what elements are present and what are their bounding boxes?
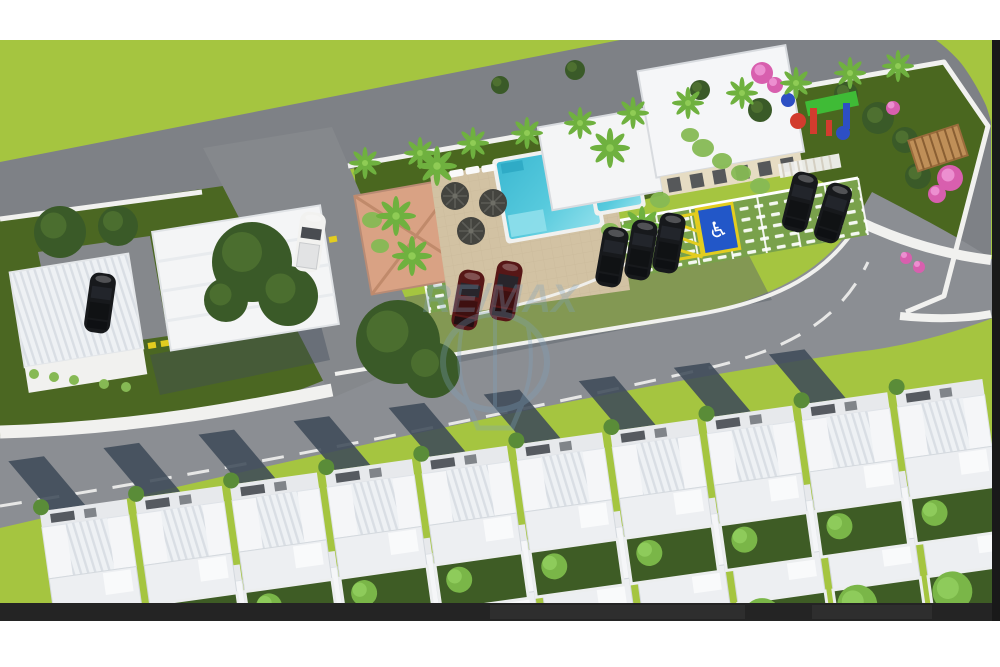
roof-ribbed-panel — [731, 425, 780, 482]
shrub — [650, 192, 670, 208]
shrub — [681, 128, 699, 142]
planter-shrub — [99, 379, 109, 389]
right-dark-strip — [992, 40, 1000, 621]
playground-item — [810, 108, 817, 134]
clubhouse-opening — [689, 173, 704, 189]
shrub — [371, 239, 389, 253]
clubhouse-opening — [757, 161, 772, 177]
palm-crown — [685, 100, 691, 106]
palm-crown — [417, 150, 423, 156]
truck-bed — [296, 243, 319, 270]
front-window — [844, 401, 857, 412]
terrace — [863, 462, 894, 488]
tree-cluster-light — [210, 284, 232, 306]
roof-ribbed-panel — [636, 438, 685, 495]
flower-highlight — [942, 169, 955, 182]
roof-ribbed-panel — [256, 491, 305, 548]
car-roof — [599, 255, 621, 274]
palm-crown — [630, 110, 636, 116]
flower-highlight — [769, 78, 777, 86]
palm-crown — [606, 144, 614, 152]
umbrella-pole — [453, 194, 458, 199]
palm-crown — [524, 130, 530, 136]
palm-tree — [590, 128, 630, 168]
playground-item — [843, 103, 850, 129]
terrace — [673, 489, 704, 515]
front-window — [84, 508, 97, 519]
gatehouse-roof — [10, 254, 144, 368]
palm-tree — [882, 50, 914, 82]
tree-cluster-light — [41, 213, 67, 239]
palm-crown — [739, 90, 745, 96]
front-window — [179, 494, 192, 505]
playground-item — [836, 126, 850, 140]
palm-tree — [349, 147, 381, 179]
front-window — [274, 481, 287, 492]
palm-crown — [433, 162, 441, 170]
palm-tree — [564, 107, 596, 139]
garden-tree-light — [692, 82, 702, 92]
car-roof — [628, 248, 650, 267]
tree-cluster-light — [367, 311, 409, 353]
palm-tree — [672, 87, 704, 119]
roof-ribbed-panel — [541, 451, 590, 508]
palm-crown — [895, 63, 901, 69]
garden-tree-light — [493, 78, 502, 87]
playground-item — [790, 113, 806, 129]
bottom-bar-segment — [490, 605, 745, 619]
playground-item — [781, 93, 795, 107]
playground-item — [826, 120, 832, 136]
terrace — [103, 569, 134, 595]
tree-cluster-light — [266, 274, 296, 304]
car-roof — [656, 241, 678, 260]
terrace — [768, 476, 799, 502]
palm-tree — [726, 77, 758, 109]
bottom-white-margin — [0, 621, 1000, 667]
front-window — [464, 454, 477, 465]
palm-tree — [417, 146, 457, 186]
clubhouse-opening — [712, 169, 727, 185]
site-plan-render: ♿ — [0, 0, 1000, 667]
flower-highlight — [901, 252, 907, 258]
flower-highlight — [888, 102, 895, 109]
terrace — [578, 503, 609, 529]
palm-crown — [362, 160, 368, 166]
planter-shrub — [69, 375, 79, 385]
roof-ribbed-panel — [446, 465, 495, 522]
front-window — [939, 387, 952, 398]
garden-tree-light — [567, 62, 577, 72]
palm-tree — [457, 127, 489, 159]
garden-tree-light — [867, 107, 883, 123]
car-roof — [88, 302, 110, 321]
umbrella-pole — [491, 201, 496, 206]
tree-cluster-light — [103, 211, 123, 231]
shrub — [750, 178, 770, 194]
flower-highlight — [931, 187, 940, 196]
tree-cluster-light — [222, 232, 262, 272]
terrace — [958, 449, 989, 475]
clubhouse-opening — [667, 177, 682, 193]
terrace — [198, 556, 229, 582]
palm-tree — [392, 236, 432, 276]
palm-tree — [834, 57, 866, 89]
planter-shrub — [121, 382, 131, 392]
tree-cluster-light — [411, 349, 439, 377]
flower-highlight — [755, 65, 766, 76]
shrub — [712, 153, 732, 169]
shrub — [692, 139, 714, 157]
bottom-bar-segment — [812, 605, 932, 619]
roof-ribbed-panel — [826, 411, 875, 468]
planter-shrub — [29, 369, 39, 379]
palm-tree — [780, 67, 812, 99]
top-white-margin — [0, 0, 1000, 40]
roof-ribbed-panel — [66, 518, 115, 575]
palm-tree — [511, 117, 543, 149]
palm-crown — [408, 252, 416, 260]
terrace — [483, 516, 514, 542]
garden-tree-light — [896, 131, 909, 144]
bottom-bar — [0, 603, 1000, 621]
front-window — [654, 427, 667, 438]
umbrella-pole — [469, 229, 474, 234]
front-window — [559, 441, 572, 452]
shrub — [731, 165, 751, 181]
sidewalk-right-lower — [900, 314, 991, 318]
roof-ribbed-panel — [161, 505, 210, 562]
palm-tree — [376, 196, 416, 236]
screenshot-stage: ♿ — [0, 0, 1000, 667]
terrace — [293, 543, 324, 569]
front-window — [369, 468, 382, 479]
roof-ribbed-panel — [921, 398, 970, 455]
terrace — [388, 529, 419, 555]
flower-highlight — [914, 261, 920, 267]
palm-crown — [577, 120, 583, 126]
planter-shrub — [49, 372, 59, 382]
palm-crown — [470, 140, 476, 146]
palm-crown — [392, 212, 400, 220]
palm-tree — [617, 97, 649, 129]
palm-crown — [847, 70, 853, 76]
roof-ribbed-panel — [351, 478, 400, 535]
front-window — [749, 414, 762, 425]
palm-crown — [793, 80, 799, 86]
